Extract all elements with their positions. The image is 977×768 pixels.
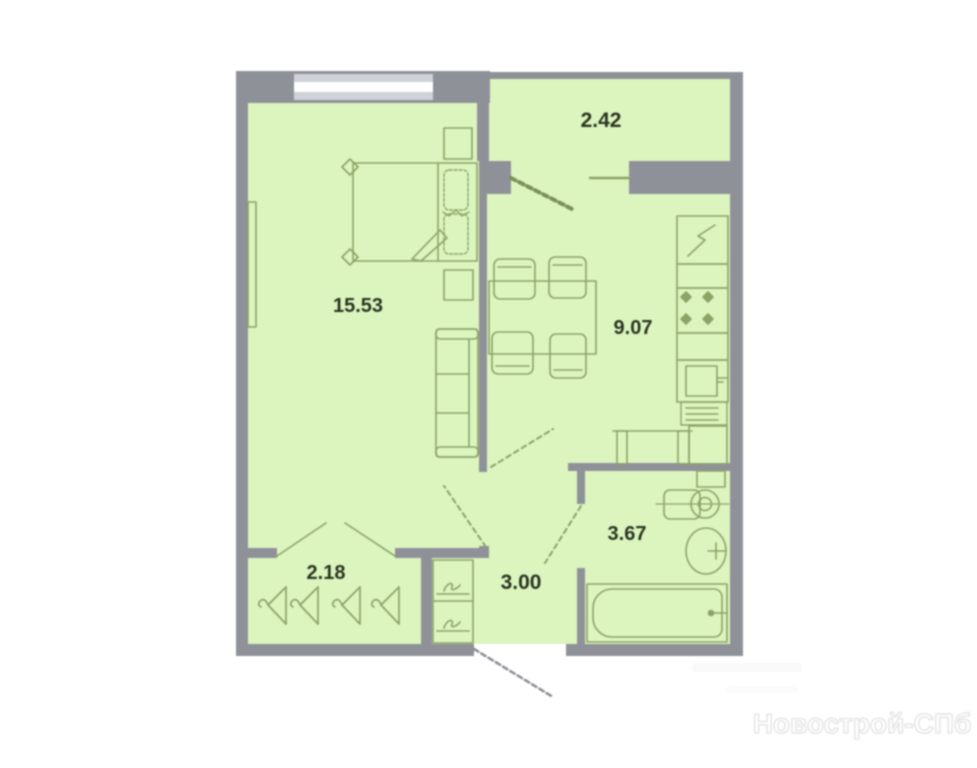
svg-text:2.42: 2.42 [581,109,622,132]
svg-text:Новострой-СПб: Новострой-СПб [753,708,972,739]
svg-text:2.18: 2.18 [307,562,346,584]
svg-text:3.67: 3.67 [608,523,647,545]
svg-text:9.07: 9.07 [614,317,653,339]
svg-text:3.00: 3.00 [501,571,542,594]
svg-text:15.53: 15.53 [333,295,383,317]
